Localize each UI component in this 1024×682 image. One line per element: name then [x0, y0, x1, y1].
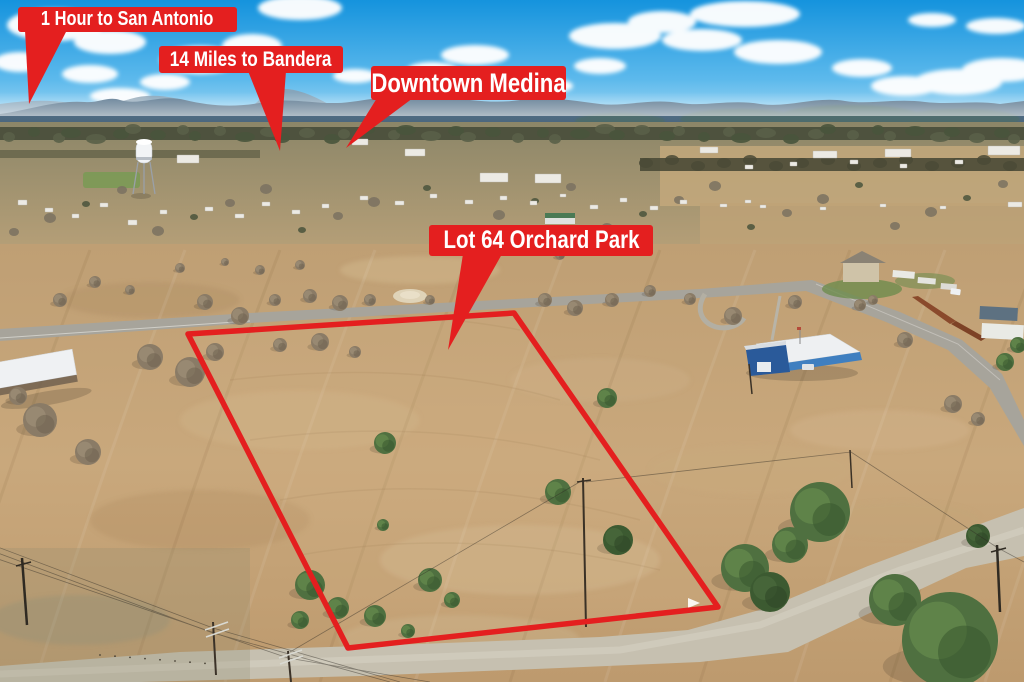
- label-san-antonio-distance: 1 Hour to San Antonio: [18, 7, 237, 32]
- sports-field: [83, 172, 140, 188]
- label-san-antonio-text: 1 Hour to San Antonio: [41, 8, 213, 31]
- label-lot-text: Lot 64 Orchard Park: [443, 226, 639, 255]
- label-bandera-distance: 14 Miles to Bandera: [159, 46, 343, 73]
- aerial-photo: 1 Hour to San Antonio 14 Miles to Bander…: [0, 0, 1024, 682]
- pickup-truck: [802, 364, 814, 370]
- label-medina-text: Downtown Medina: [371, 68, 565, 99]
- treeline-3: [0, 150, 260, 158]
- label-downtown-medina: Downtown Medina: [371, 66, 566, 100]
- label-lot-name: Lot 64 Orchard Park: [429, 225, 653, 256]
- dirt-pond-center: [400, 291, 420, 299]
- flag: [797, 327, 801, 330]
- label-bandera-text: 14 Miles to Bandera: [170, 48, 332, 72]
- photo-scene: [0, 0, 1024, 682]
